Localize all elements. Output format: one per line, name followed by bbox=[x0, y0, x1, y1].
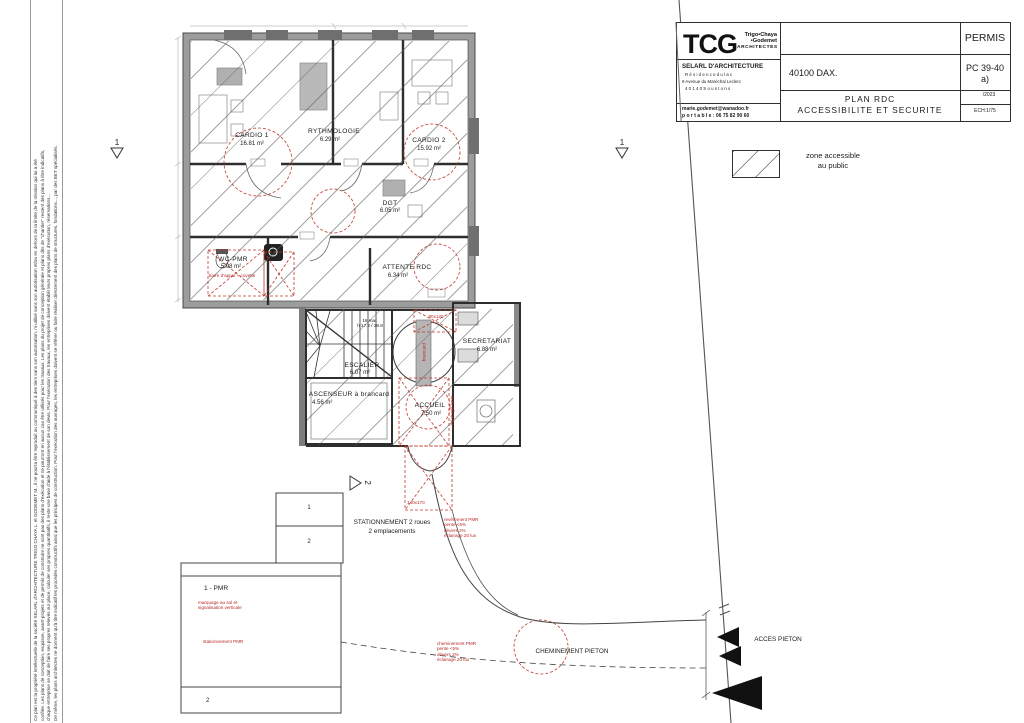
room-name-dgt: DGT bbox=[383, 200, 398, 208]
room-name-secretariat: SECRETARIAT bbox=[463, 338, 511, 346]
drawing-scale: ECH:1/75 bbox=[974, 109, 996, 115]
section-marker-left: 1 bbox=[115, 138, 119, 147]
firm-name: SELARL D'ARCHITECTURE bbox=[682, 63, 763, 70]
stationnement-line1: STATIONNEMENT 2 roues bbox=[354, 519, 431, 526]
tcg-logo-sub: Trigo•Chaya •Godemet ARCHITECTES bbox=[737, 32, 777, 51]
room-area-ascenseur: 4.56 m² bbox=[312, 400, 332, 407]
room-area-dgt: 6.05 m² bbox=[380, 208, 400, 215]
stair-note: 16 mar. h 17.2 / 28.8 bbox=[357, 318, 383, 329]
room-area-cardio2: 15.92 m² bbox=[417, 146, 441, 153]
parking-pmr-note: stationnement PMR bbox=[203, 639, 243, 644]
plan-title-line2: ACCESSIBILITE ET SECURITE bbox=[798, 106, 943, 116]
tcg-logo-sub3: ARCHITECTES bbox=[737, 45, 777, 51]
pmr-path-note-1: revêtement PMR pente <5% dévers 2% éclai… bbox=[444, 517, 478, 538]
room-name-wc-pmr: WC-PMR bbox=[218, 256, 248, 264]
dim-140x170: 140x170 bbox=[407, 500, 425, 505]
parking-marking-note: marquage au sol et signalisation vertica… bbox=[198, 600, 242, 611]
room-area-attente: 6.34 m² bbox=[388, 273, 408, 280]
permit-date: /2023 bbox=[983, 93, 996, 99]
pmr-path-note-2: cheminement PMR pente <5% dévers 2% écla… bbox=[437, 641, 476, 662]
title-block: TCG Trigo•Chaya •Godemet ARCHITECTES SEL… bbox=[676, 22, 1011, 122]
dim-80x120: 80x120 bbox=[428, 314, 443, 319]
room-area-escalier: 6.07 m² bbox=[350, 370, 370, 377]
brancard-label: brancard bbox=[421, 343, 426, 361]
section-marker-bottom: 2 bbox=[363, 480, 372, 484]
room-name-cardio2: CARDIO 2 bbox=[412, 137, 446, 145]
room-name-attente: ATTENTE RDC bbox=[383, 264, 432, 272]
firm-email: marie.godemet@wanadoo.fr bbox=[682, 107, 749, 113]
room-area-accueil: 7.50 m² bbox=[421, 411, 441, 418]
pc-number-line2: a) bbox=[981, 74, 989, 84]
stationnement-line2: 2 emplacements bbox=[369, 528, 416, 535]
room-area-wc-pmr: 5.08 m² bbox=[221, 264, 241, 271]
cheminement-label: CHEMINEMENT PIETON bbox=[536, 648, 609, 655]
firm-address3: 4 0 1 4 0 S o u s t o n s bbox=[685, 86, 730, 91]
section-marker-right: 1 bbox=[620, 138, 624, 147]
firm-phone: p o r t a b l e : 06 75 82 90 60 bbox=[682, 114, 749, 120]
plan-title-line1: PLAN RDC bbox=[845, 95, 895, 105]
firm-address1: R é s i d e n c e d u l a c bbox=[685, 72, 732, 77]
moto-space-2: 2 bbox=[307, 539, 310, 546]
room-area-secretariat: 6.88 m² bbox=[477, 347, 497, 354]
room-area-cardio1: 16.81 m² bbox=[240, 141, 264, 148]
room-area-rythmologie: 6.29 m² bbox=[320, 137, 340, 144]
permit-label: PERMIS bbox=[965, 32, 1005, 44]
legend-line1: zone accessible bbox=[806, 152, 860, 161]
moto-space-1: 1 bbox=[307, 505, 310, 512]
legend-line2: au public bbox=[818, 162, 848, 171]
firm-address2: 9 Avenue du Maréchal Leclerc bbox=[682, 79, 741, 84]
furniture-secretariat bbox=[458, 312, 495, 422]
entrance-note: éclairage extér. bbox=[449, 394, 454, 425]
parking-space-pmr: 1 - PMR bbox=[204, 585, 228, 593]
room-name-cardio1: CARDIO 1 bbox=[235, 132, 269, 140]
acces-pieton-label: ACCES PIETON bbox=[754, 636, 801, 643]
room-name-rythmologie: RYTHMOLOGIE bbox=[308, 128, 360, 136]
legend-swatch bbox=[732, 150, 780, 178]
tcg-logo: TCG bbox=[683, 29, 737, 60]
room-name-ascenseur: ASCENSEUR à brancard bbox=[309, 391, 389, 399]
project-city: 40100 DAX. bbox=[789, 68, 838, 78]
floor-plan-page: Ce plan est la propriété intellectuelle … bbox=[0, 0, 1024, 723]
wc-pmr-note: barre d'appui + cuvette bbox=[209, 273, 256, 278]
pc-number-line1: PC 39-40 bbox=[966, 63, 1004, 73]
parking-space-2: 2 bbox=[206, 698, 209, 705]
room-name-accueil: ACCUEIL bbox=[415, 402, 446, 410]
site-works bbox=[181, 474, 762, 713]
room-name-escalier: ESCALIER bbox=[344, 362, 379, 370]
